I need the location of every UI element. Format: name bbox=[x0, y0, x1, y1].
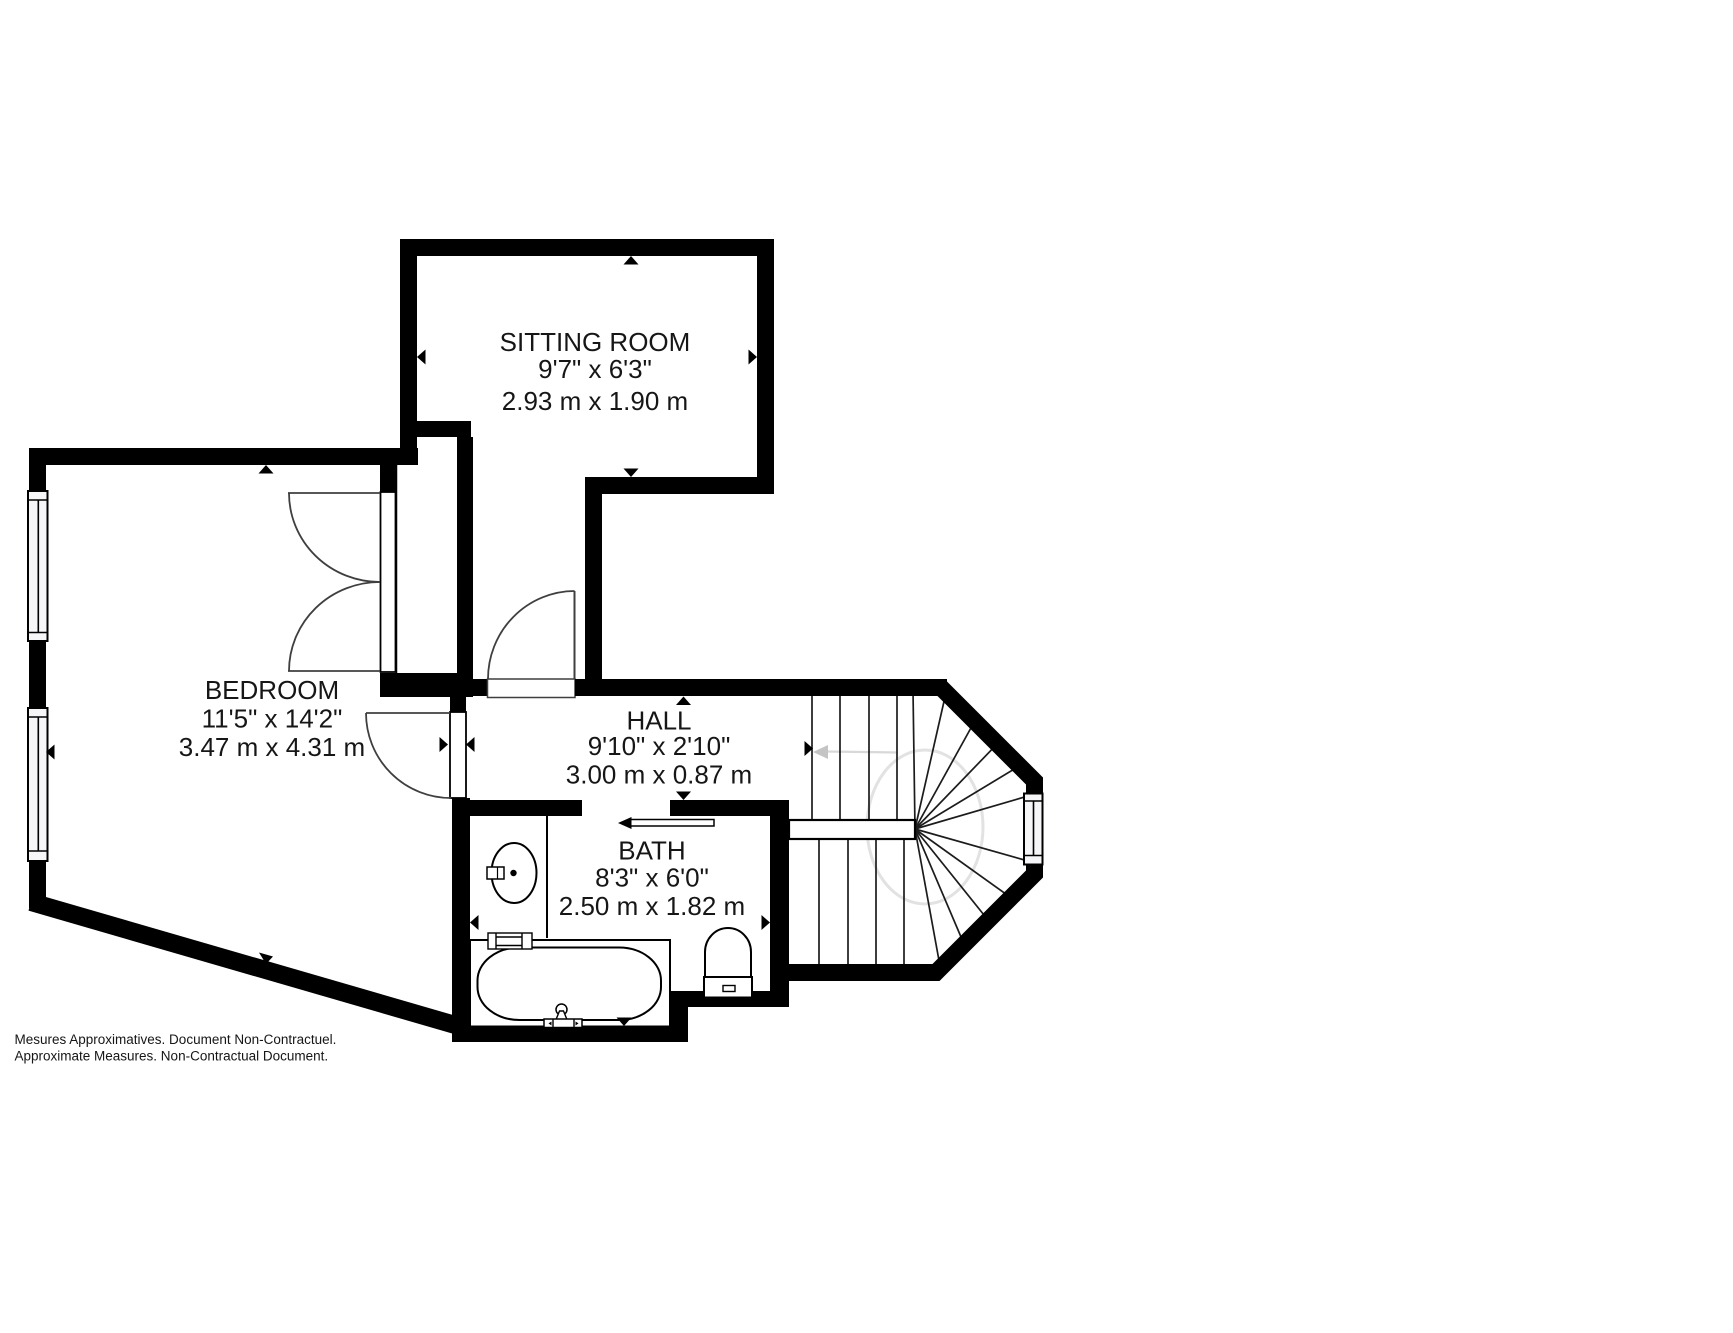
svg-text:3.47 m x 4.31 m: 3.47 m x 4.31 m bbox=[179, 732, 365, 762]
svg-text:8'3" x 6'0": 8'3" x 6'0" bbox=[595, 863, 709, 893]
svg-text:9'10" x 2'10": 9'10" x 2'10" bbox=[588, 731, 731, 761]
svg-text:2.50 m x 1.82 m: 2.50 m x 1.82 m bbox=[559, 891, 745, 921]
svg-text:Approximate Measures. Non-Cont: Approximate Measures. Non-Contractual Do… bbox=[15, 1049, 329, 1064]
svg-text:2.93 m x 1.90 m: 2.93 m x 1.90 m bbox=[502, 386, 688, 416]
svg-text:3.00 m x 0.87 m: 3.00 m x 0.87 m bbox=[566, 760, 752, 790]
svg-text:BEDROOM: BEDROOM bbox=[205, 675, 339, 705]
svg-text:SITTING ROOM: SITTING ROOM bbox=[500, 327, 691, 357]
svg-text:11'5" x 14'2": 11'5" x 14'2" bbox=[202, 704, 343, 734]
svg-text:Mesures Approximatives. Docume: Mesures Approximatives. Document Non-Con… bbox=[15, 1032, 337, 1047]
svg-text:9'7" x 6'3": 9'7" x 6'3" bbox=[538, 354, 652, 384]
svg-text:BATH: BATH bbox=[618, 836, 685, 866]
